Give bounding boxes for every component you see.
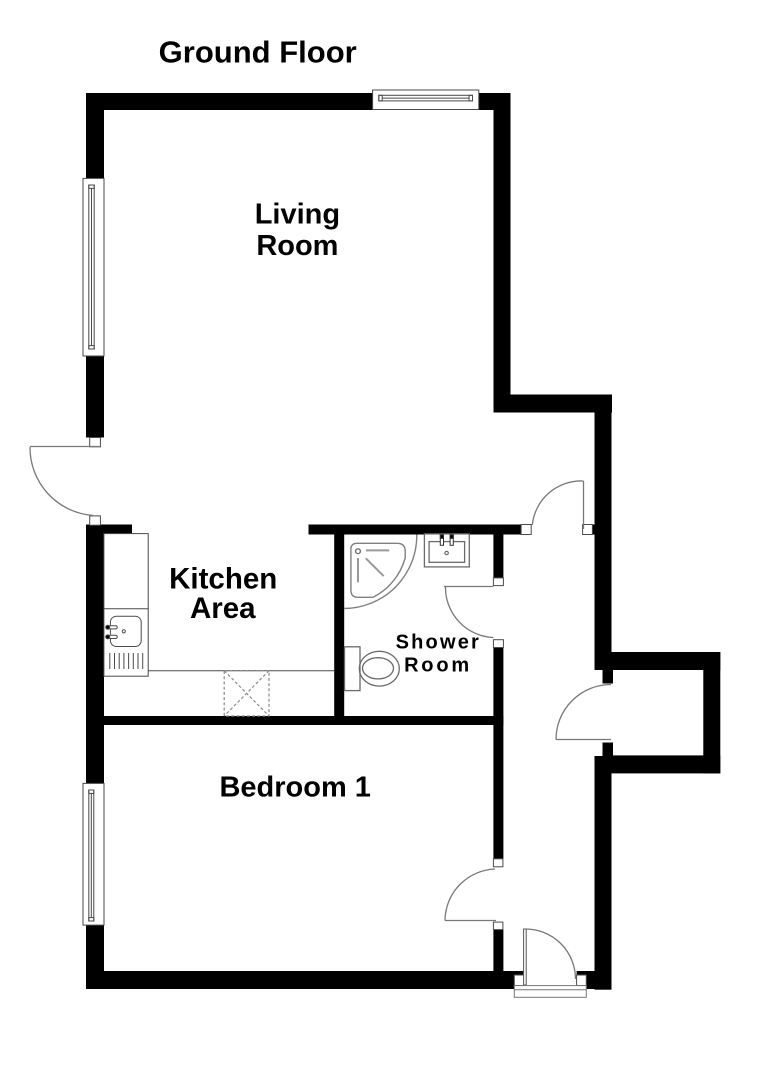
svg-text:Kitchen: Kitchen <box>169 563 277 596</box>
svg-text:Room: Room <box>256 230 338 262</box>
svg-text:Living: Living <box>255 198 340 230</box>
svg-text:Room: Room <box>404 655 472 677</box>
svg-text:Area: Area <box>190 592 256 625</box>
svg-text:Shower: Shower <box>396 632 481 654</box>
svg-text:Ground Floor: Ground Floor <box>159 35 357 70</box>
svg-text:Bedroom 1: Bedroom 1 <box>219 772 370 804</box>
